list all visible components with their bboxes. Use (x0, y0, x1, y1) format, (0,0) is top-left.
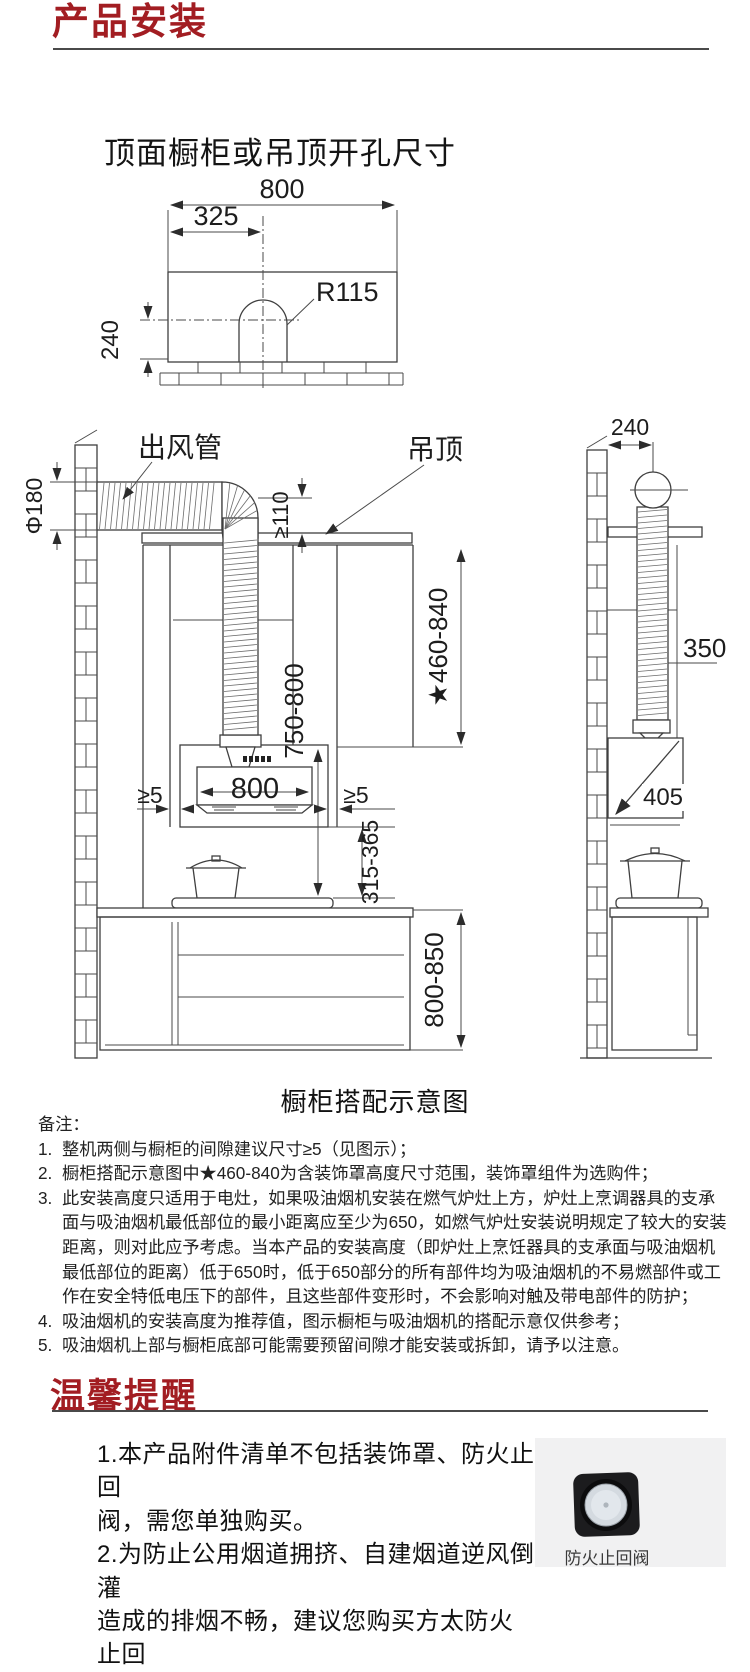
reminder-line: 2.为防止公用烟道拥挤、自建烟道逆风倒灌 (97, 1538, 537, 1605)
note-item: 4.吸油烟机的安装高度为推荐值，图示橱柜与吸油烟机的搭配示意仅供参考； (38, 1309, 728, 1334)
dim-cover-range: ★460-840 (423, 588, 453, 707)
pot-front (186, 856, 246, 898)
dim-240: 240 (97, 320, 124, 360)
reminder-text: 1.本产品附件清单不包括装饰罩、防火止回阀，需您单独购买。2.为防止公用烟道拥挤… (97, 1438, 537, 1672)
dim-counter-height: 800-850 (419, 932, 449, 1027)
notes-section: 备注： 1.整机两侧与橱柜的间隙建议尺寸≥5（见图示）；2.橱柜搭配示意图中★4… (38, 1112, 728, 1358)
manual-page: { "header": { "title": "产品安装" }, "diagra… (0, 0, 750, 1567)
pot-side (620, 848, 690, 898)
dim-side-gap-right: ≥5 (343, 782, 368, 808)
dim-wall-offset: 240 (611, 415, 649, 440)
dim-hood-top-height: 750-800 (279, 663, 309, 758)
notes-list: 1.整机两侧与橱柜的间隙建议尺寸≥5（见图示）；2.橱柜搭配示意图中★460-8… (38, 1137, 728, 1358)
cutout-dimension-diagram: 800 325 R115 240 (40, 158, 510, 408)
reminder-line: 1.本产品附件清单不包括装饰罩、防火止回 (97, 1438, 537, 1505)
reminder-line: 阀，需您单独购买。 (97, 1505, 537, 1538)
dim-800-top: 800 (259, 174, 304, 204)
label-air-duct: 出风管 (138, 432, 222, 463)
dim-side-width: 405 (643, 784, 683, 811)
dim-hood-bottom-height: 315-365 (357, 820, 383, 904)
dim-hood-width: 800 (231, 773, 279, 805)
cabinet-matching-diagram: Φ180 出风管 吊顶 ≥110 ★460-840 750-800 800 ≥5… (0, 415, 750, 1095)
notes-label: 备注： (38, 1112, 728, 1137)
countertop-side (610, 908, 708, 917)
countertop-front (97, 908, 413, 917)
label-ceiling: 吊顶 (407, 434, 463, 465)
dim-325: 325 (193, 201, 238, 231)
dim-side-height: 350 (683, 633, 726, 663)
dim-side-gap-left: ≥5 (137, 782, 162, 808)
brick-course (160, 362, 403, 385)
page-title: 产品安装 (52, 0, 208, 45)
valve-label: 防火止回阀 (535, 1544, 679, 1569)
note-item: 5.吸油烟机上部与橱柜底部可能需要预留间隙才能安装或拆卸，请予以注意。 (38, 1333, 728, 1358)
reminder-divider (52, 1410, 708, 1412)
valve-card: 防火止回阀 (535, 1438, 726, 1567)
base-cabinet-side (612, 917, 697, 1050)
note-item: 2.橱柜搭配示意图中★460-840为含装饰罩高度尺寸范围，装饰罩组件为选购件； (38, 1161, 728, 1186)
note-item: 1.整机两侧与橱柜的间隙建议尺寸≥5（见图示）； (38, 1137, 728, 1162)
dim-duct-diameter: Φ180 (21, 478, 47, 535)
reminder-line: 造成的排烟不畅，建议您购买方太防火止回 (97, 1605, 537, 1672)
cooktop-side (616, 898, 702, 908)
valve-image (572, 1470, 642, 1540)
dim-ceiling-gap: ≥110 (268, 491, 293, 538)
cooktop-front (172, 898, 333, 908)
base-cabinet-front (100, 917, 410, 1050)
note-item: 3.此安装高度只适用于电灶，如果吸油烟机安装在燃气炉灶上方，炉灶上烹调器具的支承… (38, 1186, 728, 1309)
dim-r115: R115 (316, 277, 379, 307)
air-duct-horizontal (97, 482, 222, 530)
header-divider (53, 48, 709, 50)
